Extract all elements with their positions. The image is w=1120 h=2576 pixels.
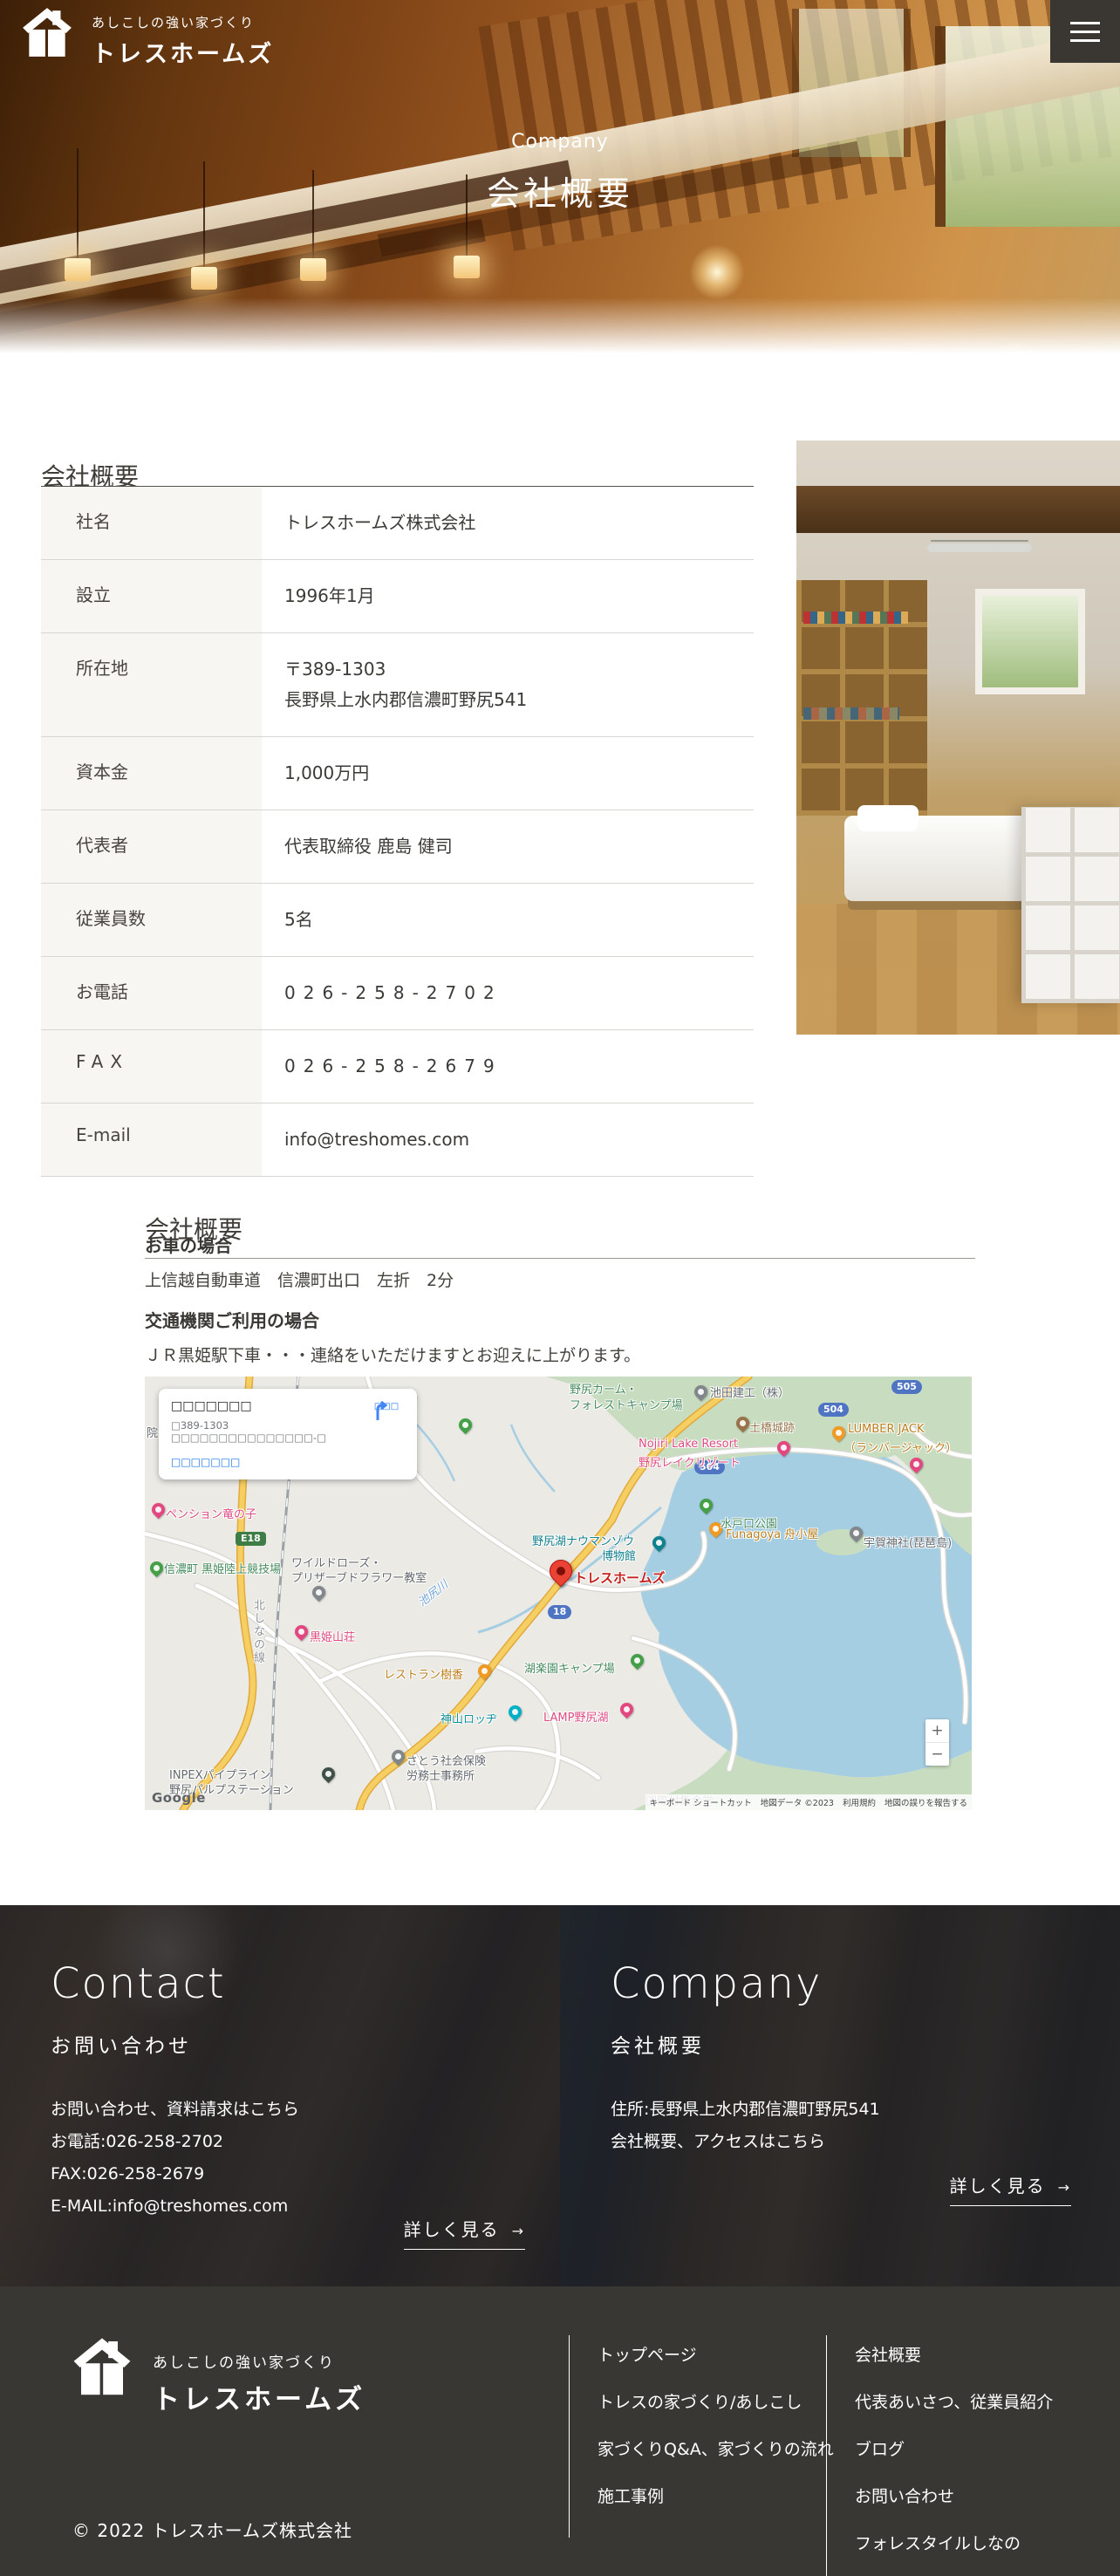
page-title: 会社概要	[0, 167, 1120, 215]
row-value: 1996年1月	[262, 560, 754, 632]
hamburger-bar	[1070, 39, 1100, 42]
map-label[interactable]: 院	[147, 1424, 158, 1440]
map-zoom-controls: + −	[925, 1719, 949, 1766]
company-card[interactable]: Company 会社概要 住所:長野県上水内郡信濃町野尻541 会社概要、アクセ…	[560, 1905, 1120, 2286]
footer-nav-housebuilding[interactable]: トレスの家づくり/あしこし	[598, 2389, 826, 2413]
company-lines: 住所:長野県上水内郡信濃町野尻541 会社概要、アクセスはこちら	[611, 2094, 880, 2158]
map-data-credit: 地図データ ©2023	[761, 1796, 834, 1808]
table-row: 資本金1,000万円	[41, 737, 754, 810]
table-row: 従業員数5名	[41, 884, 754, 957]
photo-ceiling-fan	[927, 543, 1032, 552]
house-logo-icon	[71, 2338, 133, 2397]
logo-tagline: あしこしの強い家づくり	[92, 13, 274, 31]
view-larger-map-link[interactable]: □□□□□□□	[171, 1456, 405, 1468]
map-label-treshomes[interactable]: トレスホームズ	[574, 1568, 666, 1587]
directions-button[interactable]: □□□	[366, 1399, 406, 1411]
company-line: 会社概要、アクセスはこちら	[611, 2126, 880, 2158]
hero-photo-spotlight	[689, 244, 745, 300]
more-label: 詳しく見る	[950, 2176, 1046, 2197]
row-label: 代表者	[41, 810, 262, 883]
footer-nav-column-2: 会社概要 代表あいさつ、従業員紹介 ブログ お問い合わせ フォレスタイルしなの	[826, 2335, 1088, 2576]
keyboard-shortcuts-link[interactable]: キーボード ショートカット	[650, 1796, 752, 1808]
company-info-table: 社名トレスホームズ株式会社 設立1996年1月 所在地〒389-1303 長野県…	[41, 486, 754, 1177]
map-label[interactable]: 博物館	[602, 1547, 636, 1563]
contact-lines: お問い合わせ、資料請求はこちら お電話:026-258-2702 FAX:026…	[51, 2094, 299, 2223]
map-label[interactable]: フォレストキャンプ場	[570, 1396, 683, 1412]
table-row: 設立1996年1月	[41, 560, 754, 633]
hero-photo-pendant-light	[65, 258, 91, 281]
row-label: 所在地	[41, 633, 262, 736]
hamburger-bar	[1070, 22, 1100, 24]
table-row: 代表者代表取締役 鹿島 健司	[41, 810, 754, 884]
table-row: 所在地〒389-1303 長野県上水内郡信濃町野尻541	[41, 633, 754, 737]
company-address: 住所:長野県上水内郡信濃町野尻541	[611, 2094, 880, 2126]
access-car-text: 上信越自動車道 信濃町出口 左折 2分	[145, 1268, 930, 1291]
site-footer: あしこしの強い家づくり トレスホームズ トップページ トレスの家づくり/あしこし…	[0, 2286, 1120, 2576]
map-label[interactable]: 神山ロッヂ	[440, 1710, 497, 1726]
access-train-title: 交通機関ご利用の場合	[145, 1307, 930, 1332]
house-logo-icon	[20, 8, 74, 58]
copyright-text: © 2022 トレスホームズ株式会社	[72, 2517, 352, 2542]
hamburger-menu-button[interactable]	[1050, 0, 1120, 63]
map-label[interactable]: LAMP野尻湖	[543, 1708, 609, 1725]
photo-beam	[796, 486, 1120, 533]
company-more-link[interactable]: 詳しく見る→	[950, 2172, 1071, 2206]
row-value: 代表取締役 鹿島 健司	[262, 810, 754, 883]
map-label[interactable]: 土橋城跡	[749, 1418, 795, 1435]
hero-photo-pendant-light	[300, 258, 326, 281]
photo-cube-shelf	[1021, 807, 1120, 1003]
hero-fade	[0, 297, 1120, 353]
map-label[interactable]: Nojiri Lake Resort	[639, 1438, 738, 1451]
map-label[interactable]: レストラン樹香	[384, 1665, 463, 1682]
arrow-icon: →	[512, 2223, 525, 2239]
map-label[interactable]: 池田建工（株）	[710, 1384, 789, 1400]
row-label: お電話	[41, 957, 262, 1029]
table-row: お電話026-258-2702	[41, 957, 754, 1030]
map-attribution: キーボード ショートカット 地図データ ©2023 利用規約 地図の誤りを報告す…	[645, 1794, 972, 1810]
map-label[interactable]: 湖楽園キャンプ場	[524, 1659, 615, 1676]
footer-nav-forestyle-shinano[interactable]: フォレスタイルしなの	[855, 2531, 1088, 2554]
more-label: 詳しく見る	[404, 2219, 500, 2240]
contact-email: E-MAIL:info@treshomes.com	[51, 2190, 299, 2223]
route-shield: 18	[548, 1605, 571, 1619]
footer-cards: Contact お問い合わせ お問い合わせ、資料請求はこちら お電話:026-2…	[0, 1905, 1120, 2286]
row-value: 〒389-1303 長野県上水内郡信濃町野尻541	[262, 633, 754, 736]
map-label[interactable]: LUMBER JACK	[848, 1423, 925, 1436]
arrow-icon: →	[1058, 2179, 1071, 2196]
map-label[interactable]: 宇賀神社(琵琶島)	[864, 1534, 952, 1550]
footer-nav-column-1: トップページ トレスの家づくり/あしこし 家づくりQ&A、家づくりの流れ 施工事…	[569, 2335, 826, 2538]
photo-window	[975, 589, 1085, 694]
footer-nav-greeting-staff[interactable]: 代表あいさつ、従業員紹介	[855, 2389, 1088, 2413]
route-shield: 505	[891, 1380, 922, 1394]
map-label[interactable]: （ランバージャック）	[844, 1438, 957, 1455]
access-car-title: お車の場合	[145, 1232, 930, 1257]
row-label: 設立	[41, 560, 262, 632]
company-subtitle: 会社概要	[611, 2029, 705, 2059]
contact-more-link[interactable]: 詳しく見る→	[404, 2216, 525, 2250]
route-shield: 504	[818, 1403, 849, 1417]
contact-line: お問い合わせ、資料請求はこちら	[51, 2094, 299, 2126]
row-value: 026-258-2679	[262, 1030, 754, 1103]
footer-logo[interactable]: あしこしの強い家づくり トレスホームズ	[71, 2338, 365, 2416]
map-label[interactable]: 労務士事務所	[406, 1766, 475, 1783]
map-label[interactable]: 野尻カーム・	[570, 1380, 638, 1397]
row-value: トレスホームズ株式会社	[262, 487, 754, 559]
company-photo	[796, 441, 1120, 1035]
footer-logo-tagline: あしこしの強い家づくり	[153, 2350, 365, 2372]
access-train-text: ＪＲ黒姫駅下車・・・連絡をいただけますとお迎えに上がります。	[145, 1343, 930, 1366]
footer-nav-contact[interactable]: お問い合わせ	[855, 2484, 1088, 2507]
info-window-address: □389-1303 □□□□□□□□□□□□□□□-□	[171, 1419, 337, 1444]
directions-icon	[366, 1399, 389, 1422]
map-info-window: □□□□□□□ □389-1303 □□□□□□□□□□□□□□□-□ □□□□…	[159, 1389, 417, 1479]
row-value: 1,000万円	[262, 737, 754, 810]
logo-name: トレスホームズ	[92, 35, 274, 69]
hero-subtitle: Company	[0, 131, 1120, 153]
row-value: 026-258-2702	[262, 957, 754, 1029]
row-label: FAX	[41, 1030, 262, 1103]
map-label[interactable]: ペンション竜の子	[166, 1505, 256, 1521]
map-label-railline[interactable]: 北しなの線	[249, 1599, 266, 1664]
photo-pillow	[857, 805, 919, 831]
terms-link[interactable]: 利用規約	[843, 1796, 876, 1808]
table-row: 社名トレスホームズ株式会社	[41, 487, 754, 560]
row-value: info@treshomes.com	[262, 1104, 754, 1176]
row-label: 資本金	[41, 737, 262, 810]
hamburger-bar	[1070, 31, 1100, 33]
page: Company 会社概要 あしこしの強い家づくり トレスホームズ 会社概要 社名…	[0, 0, 1120, 2576]
contact-fax: FAX:026-258-2679	[51, 2158, 299, 2190]
map-label[interactable]: Funagoya 舟小屋	[726, 1525, 818, 1541]
report-error-link[interactable]: 地図の誤りを報告する	[884, 1796, 967, 1808]
contact-subtitle: お問い合わせ	[51, 2029, 192, 2059]
footer-nav-blog[interactable]: ブログ	[855, 2436, 1088, 2460]
map-label[interactable]: 野尻レイクリゾート	[639, 1453, 741, 1470]
access-car-block: お車の場合 上信越自動車道 信濃町出口 左折 2分	[145, 1232, 930, 1291]
row-value: 5名	[262, 884, 754, 956]
table-row: FAX026-258-2679	[41, 1030, 754, 1104]
contact-phone: お電話:026-258-2702	[51, 2126, 299, 2158]
zoom-out-button[interactable]: −	[925, 1743, 949, 1766]
route-shield: E18	[236, 1532, 266, 1546]
photo-books	[803, 707, 899, 720]
google-map[interactable]: 505 504 504 E18 18 池田建工（株） 村 野尻カーム・ フォレス…	[145, 1377, 972, 1810]
footer-nav-company-overview[interactable]: 会社概要	[855, 2342, 1088, 2366]
company-title: Company	[611, 1959, 822, 2008]
row-label: 従業員数	[41, 884, 262, 956]
contact-card[interactable]: Contact お問い合わせ お問い合わせ、資料請求はこちら お電話:026-2…	[0, 1905, 560, 2286]
map-label[interactable]: 黒姫山荘	[310, 1628, 355, 1644]
map-label[interactable]: プリザーブドフラワー教室	[291, 1568, 427, 1585]
footer-nav-top-page[interactable]: トップページ	[598, 2342, 826, 2366]
footer-nav-qa-flow[interactable]: 家づくりQ&A、家づくりの流れ	[598, 2436, 826, 2460]
contact-title: Contact	[51, 1959, 226, 2008]
access-train-block: 交通機関ご利用の場合 ＪＲ黒姫駅下車・・・連絡をいただけますとお迎えに上がります…	[145, 1307, 930, 1366]
footer-nav-works[interactable]: 施工事例	[598, 2484, 826, 2507]
hero-photo-pendant-light	[191, 267, 217, 290]
table-row: E-mailinfo@treshomes.com	[41, 1104, 754, 1177]
map-label[interactable]: 信濃町 黒姫陸上競技場	[164, 1560, 281, 1576]
hero-banner: Company 会社概要 あしこしの強い家づくり トレスホームズ	[0, 0, 1120, 353]
hero-photo-pendant-light	[454, 256, 480, 278]
photo-books	[803, 612, 908, 624]
zoom-in-button[interactable]: +	[925, 1719, 949, 1742]
row-label: 社名	[41, 487, 262, 559]
site-logo[interactable]: あしこしの強い家づくり トレスホームズ	[20, 8, 274, 69]
row-label: E-mail	[41, 1104, 262, 1176]
google-logo[interactable]: Google	[152, 1790, 206, 1806]
footer-logo-name: トレスホームズ	[153, 2377, 365, 2416]
